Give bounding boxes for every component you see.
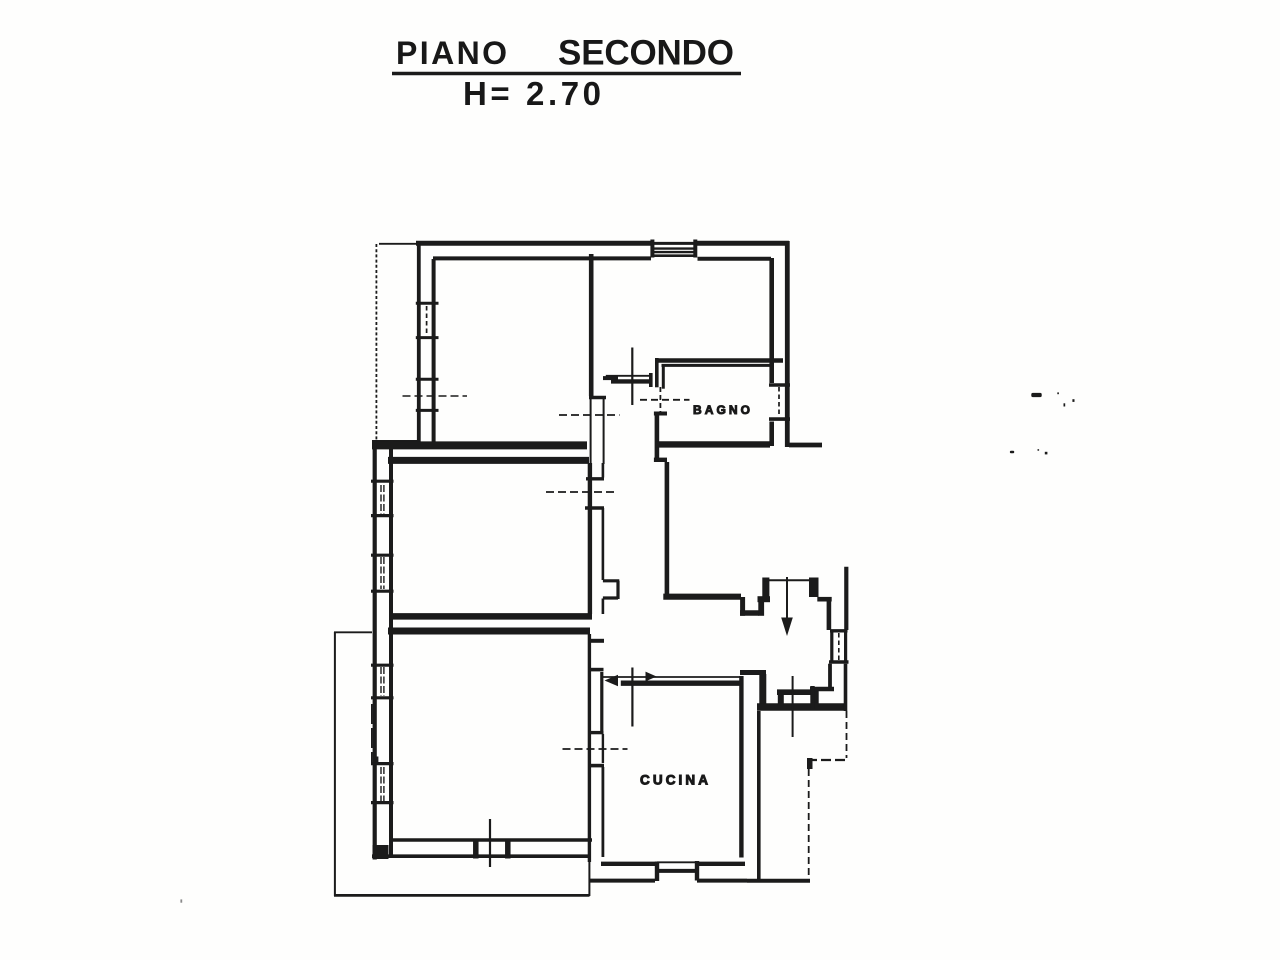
svg-text:SECONDO: SECONDO [558, 34, 734, 73]
svg-text:H= 2.70: H= 2.70 [463, 75, 601, 112]
svg-text:BAGNO: BAGNO [693, 403, 750, 417]
svg-text:CUCINA: CUCINA [640, 773, 708, 788]
svg-text:PIANO: PIANO [396, 35, 507, 71]
